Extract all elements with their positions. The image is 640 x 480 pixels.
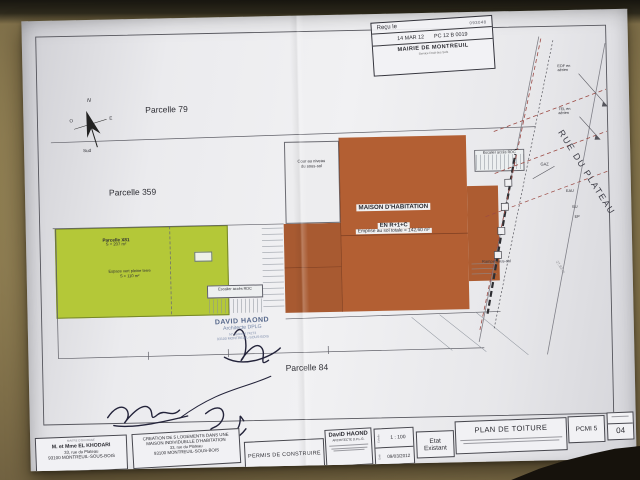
parcelle-359-label: Parcelle 359: [109, 187, 156, 198]
scale-label: Echelle: [377, 434, 380, 442]
north-arrow: [70, 106, 114, 152]
gaz-label: GAZ: [540, 161, 548, 166]
titleblock-project: CREATION DE 5 LOGEMENTS DANS UNE MAISON …: [131, 428, 241, 469]
tel-label: TEL en aérien: [558, 107, 570, 116]
building-footprint-text: Emprise au sol totale = 142,60 m²: [356, 228, 432, 235]
compass-o-label: O: [69, 118, 73, 123]
edf-label-line2: aérien: [557, 68, 570, 73]
date-label: Date: [378, 453, 381, 461]
tel-label-line2: aérien: [558, 111, 570, 116]
stamp-ref: PC 12 B 0019: [434, 31, 468, 40]
sheet-title: PLAN DE TOITURE: [456, 422, 566, 435]
sheet-title-box: PLAN DE TOITURE: [455, 417, 568, 454]
eau-label: EAU: [566, 189, 574, 193]
folio-header: [608, 415, 633, 424]
eu-label: EU: [572, 205, 577, 209]
paper-sheet: Reçu le 093048 14 MAR 12 PC 12 B 0019 MA…: [21, 9, 636, 472]
ramp-label: Rampe sous-sol: [472, 259, 520, 265]
folio-value: 04: [608, 425, 633, 435]
mairie-stamp: Reçu le 093048 14 MAR 12 PC 12 B 0019 MA…: [370, 15, 495, 77]
titleblock-owner: MAITRE D'OUVRAGE M. et Mme EL KHODARI 33…: [35, 434, 128, 471]
folio-box: 04: [606, 411, 634, 440]
edf-label: EDF en aérien: [557, 64, 570, 73]
architect-stamp: DAVID HAOND Architecte DPLG N° national …: [194, 315, 292, 366]
stamp-recu-label: Reçu le: [377, 24, 398, 32]
scale-date-box: Echelle 1 : 100 Date 09/03/2012: [373, 427, 415, 466]
code-label: PCMI 5: [576, 425, 598, 433]
building-footprint-label: Emprise au sol totale = 142,60 m²: [334, 217, 454, 238]
compass-s-label: Sud: [83, 148, 91, 153]
permit-box: PERMIS DE CONSTRUIRE: [244, 438, 325, 471]
date-value: 09/03/2012: [384, 453, 414, 459]
compass-e-label: E: [109, 116, 112, 121]
fine-print-line: [333, 449, 365, 452]
building-name-line1: MAISON D'HABITATION: [356, 203, 430, 212]
photo-of-plan: Reçu le 093048 14 MAR 12 PC 12 B 0019 MA…: [0, 0, 640, 480]
green-subparcel-label: Espace vert pleine terre S = 110 m²: [91, 268, 169, 279]
state-line2: Existant: [417, 444, 453, 452]
green-parcel-divider: [170, 226, 172, 316]
architect-box: DaviD HAOND ARCHITECTE D.P.L.G.: [324, 427, 373, 467]
scale-value: 1 : 100: [383, 434, 413, 441]
stamp-number: 093048: [469, 20, 486, 26]
ep-label: EP: [575, 215, 580, 219]
stamp-date: 14 MAR 12: [397, 34, 424, 42]
parcelle-79-label: Parcelle 79: [145, 104, 188, 115]
green-parcel-label: Parcelle X81 S = 207 m²: [81, 237, 151, 249]
state-box: Etat Existant: [416, 430, 455, 458]
fine-print-line: [611, 416, 629, 418]
compass-n-label: N: [87, 98, 91, 104]
code-box: PCMI 5: [568, 415, 606, 443]
street-lines: [473, 35, 612, 356]
